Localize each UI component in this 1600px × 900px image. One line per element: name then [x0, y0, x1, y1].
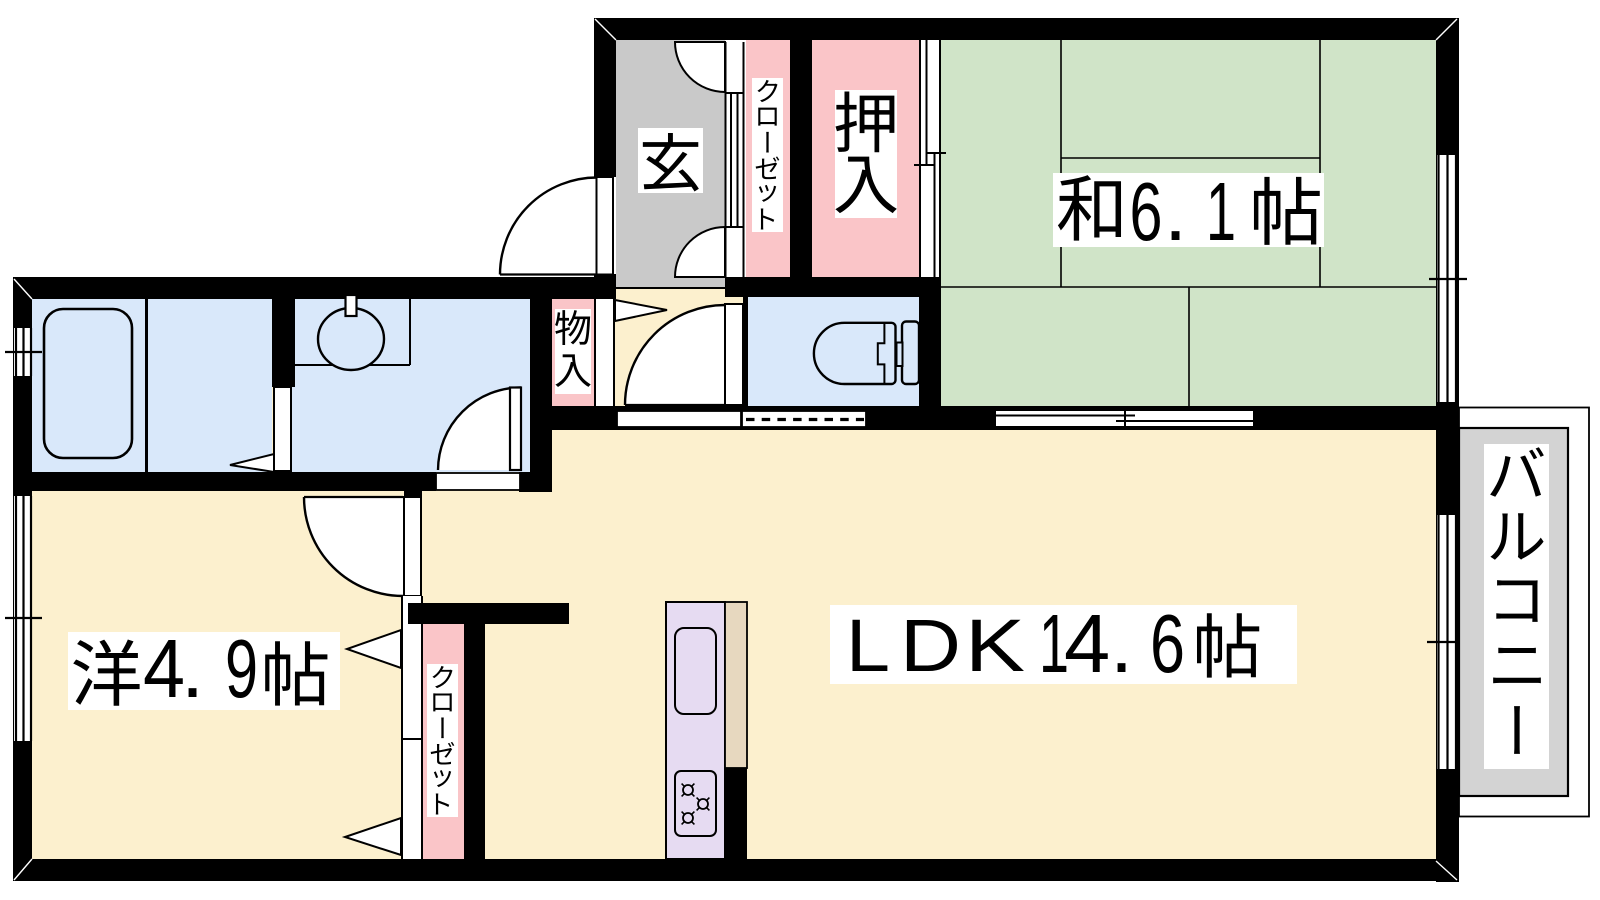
svg-text:9: 9 — [225, 622, 258, 715]
svg-text:L: L — [846, 604, 890, 687]
svg-text:.: . — [1164, 165, 1187, 258]
svg-text:1: 1 — [1206, 165, 1236, 258]
svg-text:6: 6 — [1150, 597, 1185, 690]
svg-text:D: D — [900, 604, 961, 687]
svg-text:.: . — [1110, 597, 1133, 690]
svg-text:6: 6 — [1130, 165, 1163, 258]
svg-text:.: . — [181, 622, 204, 715]
svg-text:4: 4 — [1064, 597, 1110, 690]
svg-text:K: K — [965, 604, 1025, 687]
svg-text:4: 4 — [143, 622, 185, 715]
